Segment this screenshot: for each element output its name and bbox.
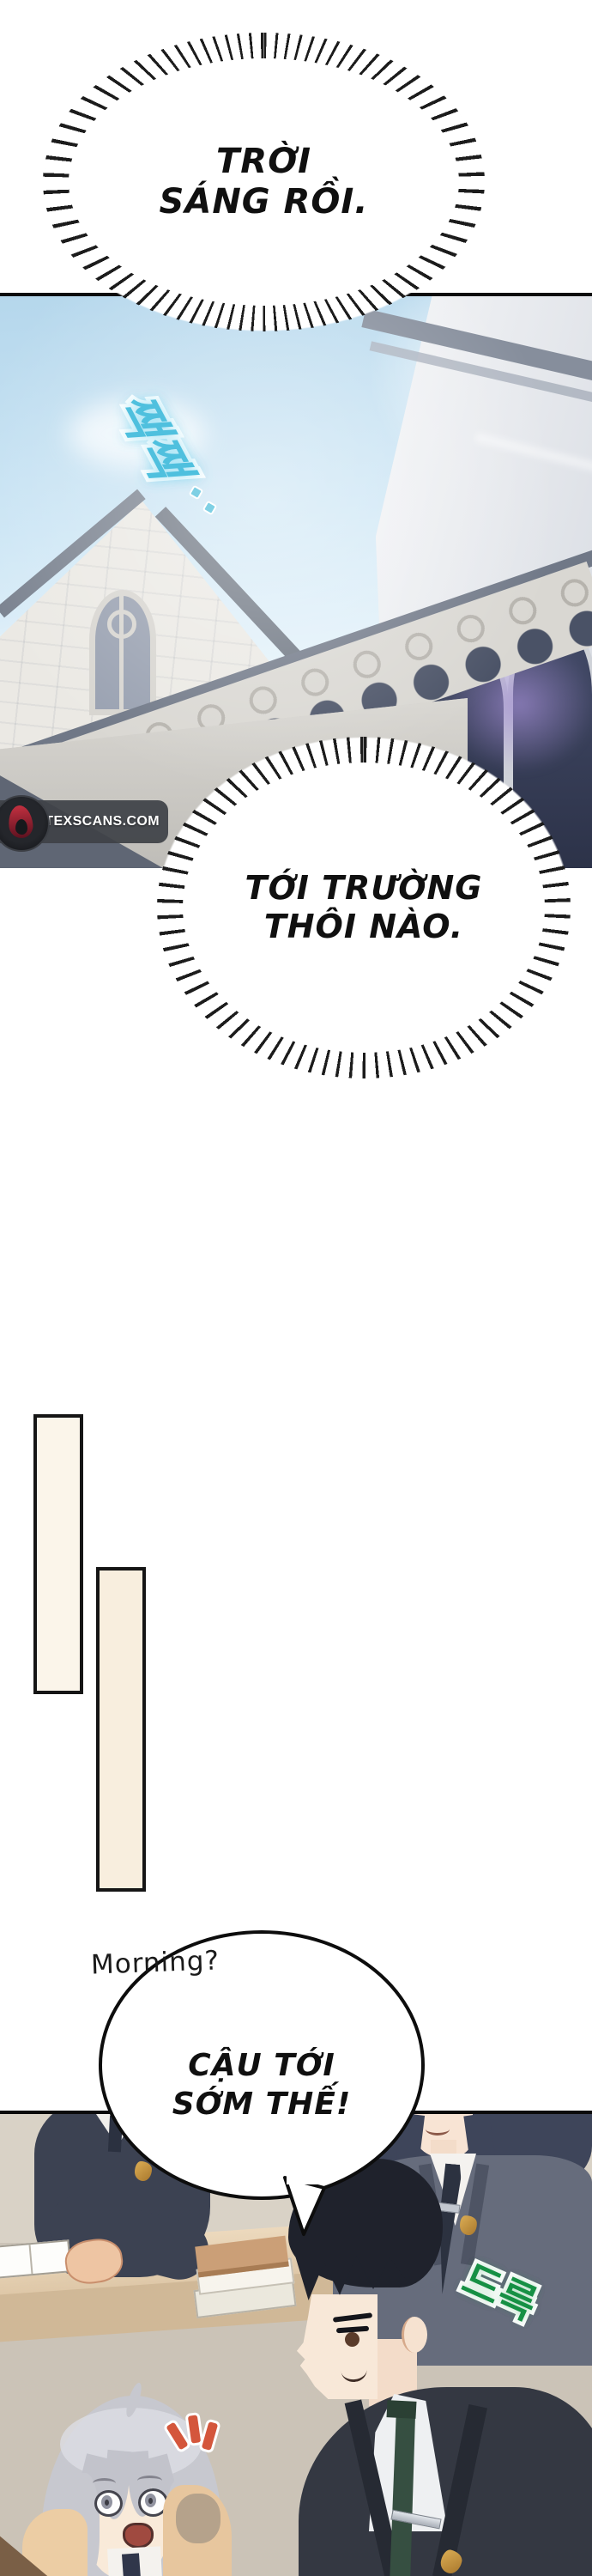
girl-grey-eye-left [94,2490,123,2517]
flame-icon-core [15,819,27,835]
bubble-top-line1: TRỜI [160,142,369,182]
girl-grey-tie [122,2553,141,2576]
girl-grey-pupil [105,2500,109,2506]
emphasis-mark [198,2418,221,2453]
mc-eye-iris [345,2332,359,2347]
girl-grey-hood-inner [176,2494,220,2543]
manhwa-page: 짹짹 짹짹 VORTEXSCANS.COM TRỜI SÁNG RỒI. TỚI… [0,0,592,2576]
girl-right-smile [426,2123,450,2136]
bubble-bottom-line2: SỚM THẾ! [172,2085,352,2123]
mc-tie-knot [386,2400,416,2419]
girl-grey-pupil [148,2498,153,2504]
handwritten-morning: Morning? [90,1945,220,1980]
bubble-top-line2: SÁNG RỒI. [160,182,369,222]
bubble-bottom-line1: CẬU TỚI [172,2046,352,2085]
burst-bubble-mid: TỚI TRƯỜNG THÔI NÀO. [157,737,571,1078]
girl-grey-eyebrow [93,2478,116,2488]
girl-grey-mouth-open [123,2523,154,2549]
empty-panel-rect-1 [33,1414,83,1694]
burst-bubble-top: TRỜI SÁNG RỒI. [43,33,485,331]
notebook-spine [29,2245,33,2274]
bubble-mid-line2: THÔI NÀO. [245,908,483,946]
bubble-mid-line1: TỚI TRƯỜNG [245,869,483,908]
speech-bubble-tail [276,2174,331,2239]
notebook [0,2239,71,2279]
mc-ear [402,2317,427,2353]
empty-panel-rect-2 [96,1567,146,1892]
girl-grey-eyebrow [137,2476,162,2486]
